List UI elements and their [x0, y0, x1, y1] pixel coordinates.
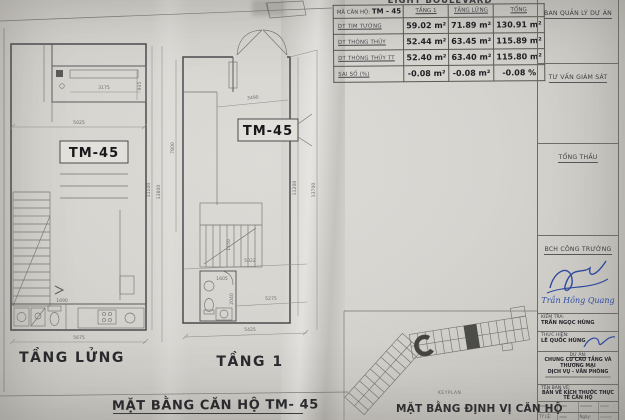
dim-inner-height-f1: 11200: [292, 181, 298, 196]
row-value: 63.40 m²: [449, 49, 494, 65]
dim-wc-width-mezz: 1690: [56, 298, 68, 304]
project-line1: CHUNG CƯ CAO TẦNG VÀ THƯƠNG MẠI: [545, 358, 612, 369]
double-door-icon: [237, 30, 287, 55]
stair-arrow-icon: [55, 286, 63, 294]
unit-tag-rows: [60, 174, 128, 198]
row-label: DT TIM TƯỜNG: [333, 18, 403, 35]
unit-tag-f1: TM-45: [243, 124, 293, 139]
dim-balcony-width: 3175: [98, 85, 110, 91]
mezzanine-upper-room: [52, 66, 146, 102]
photographed-floorplan-sheet: 3175 935 5025 5675 11100 13800 TM-45: [0, 0, 625, 420]
mezzanine-stairs: [13, 192, 63, 306]
dim-inner-height-mezz: 11100: [146, 183, 152, 198]
checked-by-name: TRẦN NGỌC HÙNG: [541, 320, 594, 326]
signature-ink-small: [581, 333, 617, 351]
project-line2: DỊCH VỤ - VĂN PHÒNG: [548, 370, 609, 375]
row-label: DT THÔNG THỦY: [333, 34, 403, 51]
toilet-icon: [50, 313, 59, 326]
apartment-plan-title: MẶT BẰNG CĂN HỘ TM- 45: [112, 397, 352, 414]
row-value: -0.08 m²: [404, 65, 449, 81]
dim-lower-width: 5275: [265, 296, 277, 302]
mezzanine-upper-fixture: [70, 70, 138, 78]
panel-site-command: BCH CÔNG TRƯỜNG Trần Hồng Quang: [538, 235, 618, 313]
row-value: 71.89 m²: [449, 17, 494, 33]
mezzanine-upper-dot: [56, 70, 63, 77]
unit-code-cell: MÃ CĂN HỘ: TM - 45: [333, 5, 403, 19]
unit-tag-mezz: TM-45: [69, 146, 119, 161]
dim-mid-width: 5022: [244, 258, 256, 264]
wc-toilet-icon: [205, 299, 214, 312]
col-tang-lung: TẦNG LỬNG: [448, 4, 493, 17]
row-label: DT THÔNG THỦY TT: [334, 50, 404, 67]
dim-total-height-mezz: 13800: [156, 185, 162, 200]
dim-upper-width: 5025: [73, 120, 85, 126]
kitchen-sink-icon: [125, 313, 135, 323]
checked-by-row: KIỂM TRA: TRẦN NGỌC HÙNG: [538, 313, 618, 331]
grid-cell: [599, 402, 618, 412]
signature-ink: [542, 256, 614, 296]
floor1-plan-label: TẦNG 1: [202, 354, 298, 370]
row-value: 63.45 m²: [449, 33, 494, 49]
area-table: MÃ CĂN HỘ: TM - 45 TẦNG 1 TẦNG LỬNG TỔNG…: [333, 3, 545, 83]
grid-cell: [599, 413, 618, 420]
mezzanine-upper-knob: [60, 84, 65, 89]
wc-sink-icon: [204, 281, 214, 291]
grid-cell: [579, 402, 599, 412]
floor1-stairs: [200, 203, 262, 267]
kitchen-counter: [78, 308, 144, 328]
col-tang1: TẦNG 1: [404, 4, 449, 17]
mezzanine-outer-walls: [11, 44, 146, 330]
table-row: DT THÔNG THỦY 52.44 m² 63.45 m² 115.89 m…: [333, 33, 544, 51]
mezzanine-bathroom-kitchen: [11, 304, 146, 330]
unit-code-value: TM - 45: [372, 7, 401, 15]
row-label: SAI SỐ (%): [334, 66, 404, 83]
unit-code-label: MÃ CĂN HỘ:: [337, 10, 370, 16]
panel-general-contractor: TỔNG THẦU: [538, 143, 618, 235]
floor1-plan: 3490 7800 5022 5275 5425 11200 13700 TM-…: [170, 30, 317, 339]
drawing-name-value: BẢN VẼ KÍCH THƯỚC THỰC TẾ CĂN HỘ: [542, 391, 614, 401]
keyplan-title: MẶT BẰNG ĐỊNH VỊ CĂN HỘ: [396, 403, 540, 415]
stove-icon: [98, 310, 116, 324]
dim-total-height-f1: 13700: [311, 183, 317, 198]
approval-panel-column: BAN QUẢN LÝ DỰ ÁN TƯ VẤN GIÁM SÁT TỔNG T…: [537, 0, 619, 420]
dim-left-height: 7800: [170, 142, 176, 154]
panel-title: TỔNG THẦU: [558, 154, 597, 163]
illegible-address-line: [545, 376, 611, 378]
project-name-row: DỰ ÁN: CHUNG CƯ CAO TẦNG VÀ THƯƠNG MẠI D…: [538, 351, 618, 384]
dim-balcony-depth: 935: [137, 82, 143, 91]
panel-title: BCH CÔNG TRƯỜNG: [544, 246, 611, 255]
row-value: 59.02 m²: [404, 17, 449, 33]
date-cell: Ngày:: [579, 413, 599, 420]
signature-name: Trần Hồng Quang: [538, 296, 618, 305]
panel-supervision-consultant: TƯ VẤN GIÁM SÁT: [538, 63, 618, 143]
row-value: -0.08 m²: [449, 65, 494, 81]
keyplan-caption: KEYPLAN: [438, 391, 461, 396]
made-by-row: THỰC HIỆN: LÊ QUỐC HÙNG: [538, 331, 618, 351]
dim-total-width-mezz: 5675: [73, 335, 85, 341]
table-row: DT THÔNG THỦY TT 52.40 m² 63.40 m² 115.8…: [334, 49, 545, 67]
panel-title: TƯ VẤN GIÁM SÁT: [549, 74, 608, 83]
row-value: 52.44 m²: [404, 33, 449, 49]
dim-wc-depth: 2040: [229, 293, 235, 305]
highlighted-unit: [463, 324, 480, 350]
washer-icon: [14, 308, 29, 326]
apartment-plan-title-underline: [113, 413, 303, 414]
dim-stair-width: 1150: [226, 239, 232, 251]
toilet-tank: [48, 306, 61, 311]
dim-entry-width: 3490: [247, 94, 259, 101]
mezzanine-plan-label: TẦNG LỬNG: [16, 350, 128, 366]
row-value: 52.40 m²: [404, 49, 449, 65]
panel-project-management: BAN QUẢN LÝ DỰ ÁN: [538, 0, 618, 63]
table-row: SAI SỐ (%) -0.08 m² -0.08 m² -0.08 %: [334, 65, 545, 83]
mezzanine-plan: 3175 935 5025 5675 11100 13800 TM-45: [10, 44, 162, 344]
panel-title: BAN QUẢN LÝ DỰ ÁN: [544, 10, 612, 19]
made-by-name: LÊ QUỐC HÙNG: [541, 338, 585, 344]
dim-total-width-f1: 5425: [244, 327, 256, 333]
table-row: DT TIM TƯỜNG 59.02 m² 71.89 m² 130.91 m²: [333, 17, 544, 35]
drawing-name-row: TÊN BẢN VẼ: BẢN VẼ KÍCH THƯỚC THỰC TẾ CĂ…: [538, 384, 618, 401]
dim-wc-width-f1: 1605: [216, 276, 228, 282]
